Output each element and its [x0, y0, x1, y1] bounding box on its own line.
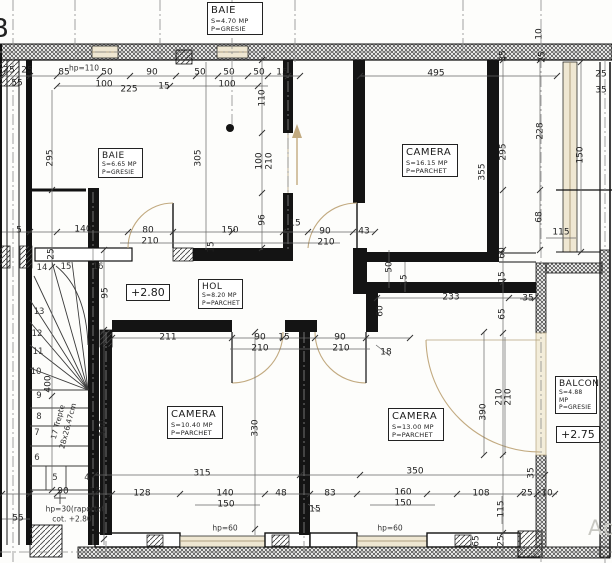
stair-step-number: 6 — [34, 454, 39, 463]
dimension-label: 35 — [595, 87, 606, 96]
dimension-label: 25 — [21, 67, 32, 76]
dimension-label: 65 — [499, 308, 508, 319]
dimension-label: 83 — [324, 490, 335, 499]
dimension-label: 211 — [159, 334, 176, 343]
watermark-text: Ad — [588, 516, 612, 540]
dimension-label: 48 — [275, 490, 286, 499]
dimension-label: 55 — [11, 80, 22, 89]
dimension-label: 15 — [158, 83, 169, 92]
annotation-layer: B BAIE S=4.70 MP P=GRESIE BAIE S=6.65 MP… — [0, 0, 612, 563]
dimension-label: 5 — [16, 227, 22, 236]
dimension-label: 25 — [521, 490, 532, 499]
dimension-label: 25 — [595, 71, 606, 80]
dimension-label: 355 — [479, 163, 488, 180]
stair-step-number: 14 — [37, 264, 48, 273]
dimension-label: 15 — [499, 271, 508, 282]
dimension-label: 50 — [253, 69, 264, 78]
dimension-label: 35 — [528, 467, 537, 478]
stair-step-number: 13 — [34, 308, 45, 317]
dimension-label: 35 — [522, 295, 533, 304]
stair-step-number: 16 — [93, 263, 104, 272]
dimension-label: 315 — [193, 470, 210, 479]
floor-plan: B BAIE S=4.70 MP P=GRESIE BAIE S=6.65 MP… — [0, 0, 612, 563]
dimension-label: 90 — [254, 334, 265, 343]
dimension-label: 150 — [221, 227, 238, 236]
stair-step-number: 7 — [34, 429, 39, 438]
dimension-label: 150 — [577, 146, 586, 163]
dimension-label: 400 — [45, 375, 54, 392]
dimension-label: 50 — [194, 69, 205, 78]
dimension-label: 100 — [95, 81, 112, 90]
dimension-label: 35 — [500, 50, 509, 61]
dimension-layer: 25255585hp=11050100225901550501005015495… — [0, 0, 612, 563]
note-label: hp=60 — [212, 524, 237, 532]
stair-step-number: 4 — [84, 474, 89, 483]
dimension-label: 15 — [208, 241, 217, 252]
dimension-label: 330 — [100, 419, 109, 436]
dimension-label: 43 — [358, 228, 369, 237]
dimension-label: 25 — [3, 67, 14, 76]
dimension-label: 150 — [394, 500, 411, 509]
dimension-label: 210 — [332, 345, 349, 354]
dimension-label: 18 — [380, 349, 391, 358]
dimension-label: 110 — [259, 89, 268, 106]
dimension-label: 50 — [223, 69, 234, 78]
dimension-label: 108 — [472, 490, 489, 499]
stair-step-number: 11 — [33, 348, 44, 357]
dimension-label: 10 — [541, 490, 552, 499]
dimension-label: 50 — [101, 69, 112, 78]
dimension-label: 295 — [500, 143, 509, 160]
dimension-label: 50 — [386, 261, 395, 272]
dimension-label: 15 — [401, 274, 410, 285]
dimension-label: 160 — [394, 489, 411, 498]
stair-step-number: 8 — [36, 413, 41, 422]
dimension-label: 210 — [141, 238, 158, 247]
dimension-label: 210 — [266, 152, 275, 169]
stair-step-number: 15 — [61, 263, 72, 272]
dimension-label: 390 — [480, 403, 489, 420]
dimension-label: 60 — [377, 305, 386, 316]
dimension-label: 25 — [498, 535, 507, 546]
dimension-label: 10 — [536, 28, 545, 39]
dimension-label: 90 — [319, 228, 330, 237]
stair-step-number: 10 — [31, 368, 42, 377]
dimension-label: 210 — [505, 388, 514, 405]
dimension-label: 15 — [289, 220, 300, 229]
note-label: hp=60 — [377, 524, 402, 532]
dimension-label: 140 — [74, 226, 91, 235]
dimension-label: 350 — [406, 468, 423, 477]
dimension-label: 225 — [120, 86, 137, 95]
stair-step-number: 12 — [32, 330, 43, 339]
dimension-label: 55 — [12, 515, 23, 524]
note-label: cot. +2.80 — [52, 515, 91, 523]
dimension-label: 295 — [47, 149, 56, 166]
dimension-label: 15 — [278, 334, 289, 343]
dimension-label: 128 — [133, 490, 150, 499]
dimension-label: 15 — [89, 488, 100, 497]
dimension-label: 100 — [218, 81, 235, 90]
note-label: hp=30(raportat — [46, 505, 105, 513]
dimension-label: 90 — [334, 334, 345, 343]
dimension-label: 115 — [552, 229, 569, 238]
dimension-label: 68 — [536, 211, 545, 222]
dimension-label: 60 — [499, 247, 508, 258]
stair-step-number: 5 — [52, 474, 57, 483]
dimension-label: 100 — [256, 152, 265, 169]
dimension-label: 25 — [48, 248, 57, 259]
dimension-label: 15 — [309, 506, 320, 515]
dimension-label: 140 — [216, 490, 233, 499]
dimension-label: 96 — [259, 214, 268, 225]
dimension-label: 210 — [251, 345, 268, 354]
dimension-label: 25 — [539, 51, 548, 62]
dimension-label: 305 — [195, 149, 204, 166]
dimension-label: 95 — [102, 287, 111, 298]
dimension-label: 65 — [473, 535, 482, 546]
stair-step-number: 9 — [36, 392, 41, 401]
dimension-label: 495 — [427, 70, 444, 79]
dimension-label: 330 — [252, 419, 261, 436]
dimension-label: 80 — [142, 227, 153, 236]
note-label: hp=110 — [69, 64, 99, 72]
dimension-label: 115 — [498, 500, 507, 517]
dimension-label: 228 — [537, 122, 546, 139]
dimension-label: 233 — [442, 294, 459, 303]
dimension-label: 15 — [276, 69, 287, 78]
dimension-label: 90 — [57, 488, 68, 497]
dimension-label: 210 — [317, 239, 334, 248]
dimension-label: 90 — [146, 69, 157, 78]
dimension-label: 150 — [217, 501, 234, 510]
